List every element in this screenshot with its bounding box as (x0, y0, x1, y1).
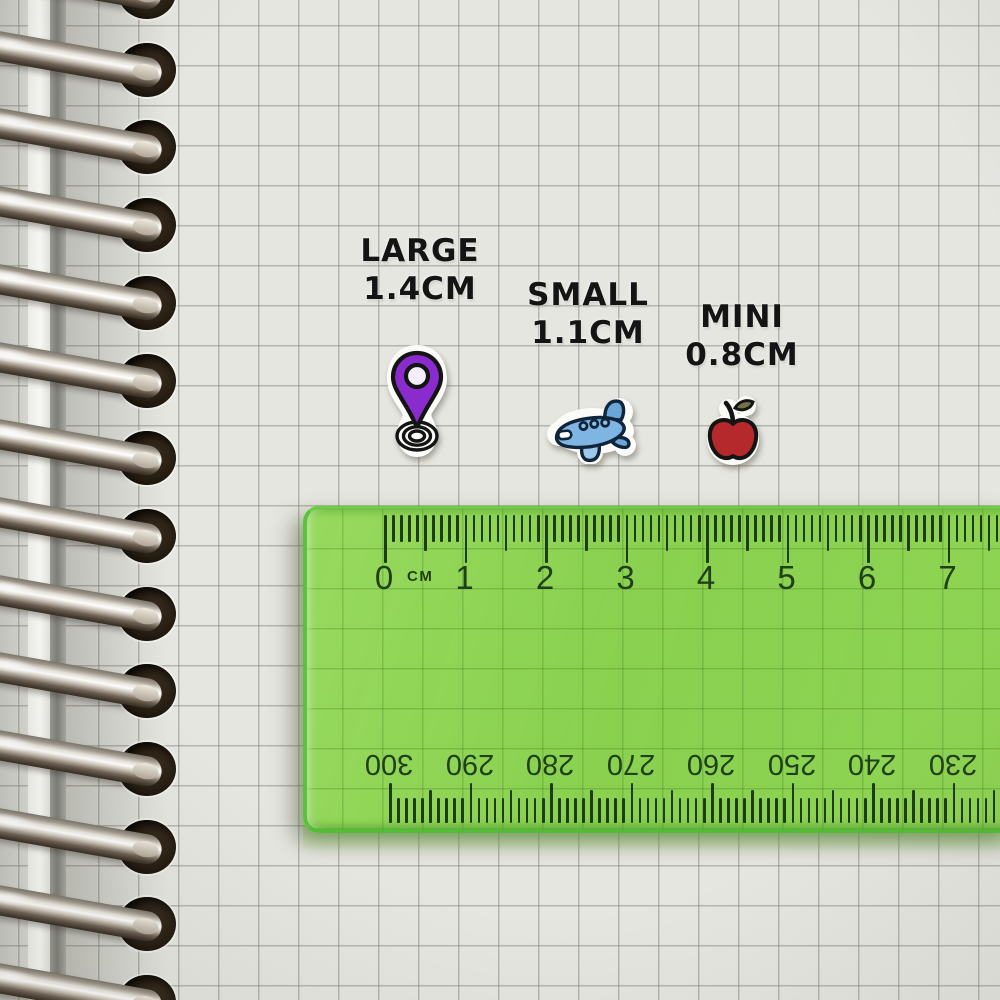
ruler-tick (489, 515, 492, 542)
ruler-tick (767, 798, 770, 823)
metal-coil-ring (0, 883, 164, 944)
ruler-tick (964, 515, 967, 542)
ruler-number: 290 (440, 747, 500, 780)
ruler-tick (843, 515, 846, 542)
ruler-tick (453, 798, 456, 823)
ruler-tick (639, 798, 642, 823)
ruler-tick (558, 798, 561, 823)
ruler-tick (510, 790, 513, 823)
ruler-number: 6 (837, 559, 897, 597)
ruler-tick (416, 515, 419, 542)
ruler-tick (961, 798, 964, 823)
ruler-tick (754, 515, 757, 542)
ruler-tick (389, 783, 392, 823)
spiral-ring-unit (0, 651, 220, 731)
ruler-tick (448, 515, 451, 542)
ruler-number: 250 (762, 747, 822, 780)
spiral-ring-unit (0, 884, 220, 964)
ruler-number: 230 (923, 747, 983, 780)
ruler-tick (534, 798, 537, 823)
ruler-tick (537, 515, 540, 542)
ruler-tick (928, 798, 931, 823)
ruler-tick (478, 798, 481, 823)
spiral-ring-unit (0, 962, 220, 1000)
ruler-tick (408, 515, 411, 542)
spiral-ring-unit (0, 418, 220, 498)
metal-coil-ring (0, 728, 164, 789)
ruler-tick (671, 790, 674, 823)
ruler-tick (445, 798, 448, 823)
metal-coil-ring (0, 572, 164, 633)
ruler-tick (550, 783, 553, 823)
ruler-tick (486, 798, 489, 823)
spiral-ring-unit (0, 185, 220, 265)
ruler-tick (985, 798, 988, 823)
ruler-tick (617, 515, 620, 542)
ruler-tick (727, 798, 730, 823)
ruler-tick (920, 798, 923, 823)
ruler-tick (695, 798, 698, 823)
ruler-tick (977, 798, 980, 823)
ruler-tick (593, 515, 596, 542)
metal-coil-ring (0, 262, 164, 323)
ruler-tick (896, 798, 899, 823)
ruler-tick (775, 798, 778, 823)
metal-coil-ring (0, 806, 164, 867)
spiral-ring-unit (0, 729, 220, 809)
ruler-tick (432, 515, 435, 542)
ruler-tick (518, 798, 521, 823)
ruler-tick (778, 515, 781, 542)
ruler-tick (808, 798, 811, 823)
ruler-tick (494, 798, 497, 823)
notebook-photo: LARGE 1.4CM SMALL 1.1CM MINI 0.8CM (0, 0, 1000, 1000)
spiral-ring-unit (0, 0, 220, 32)
metal-coil-ring (0, 417, 164, 478)
ruler-tick (904, 798, 907, 823)
ruler-tick (545, 515, 548, 563)
ruler-tick (590, 790, 593, 823)
ruler-tick (711, 783, 714, 823)
ruler-tick (730, 515, 733, 542)
ruler-tick (867, 515, 870, 563)
ruler-tick (634, 515, 637, 542)
large-sticker-label: LARGE 1.4CM (340, 232, 500, 308)
ruler-tick (931, 515, 934, 542)
ruler-tick (770, 515, 773, 542)
ruler-tick (521, 515, 524, 542)
ruler-tick (679, 798, 682, 823)
ruler-tick (598, 798, 601, 823)
ruler-tick (759, 798, 762, 823)
ruler-tick (827, 515, 830, 551)
ruler-tick (666, 515, 669, 551)
ruler-tick (722, 515, 725, 542)
ruler-number: 280 (520, 747, 580, 780)
ruler-tick (513, 515, 516, 542)
ruler-tick (800, 798, 803, 823)
ruler-tick (663, 798, 666, 823)
ruler-tick (988, 515, 991, 551)
ruler-tick (413, 798, 416, 823)
ruler-tick (561, 515, 564, 542)
spiral-ring-unit (0, 107, 220, 187)
ruler-tick (787, 515, 790, 563)
ruler-tick (969, 798, 972, 823)
location-pin-sticker (384, 343, 450, 461)
ruler-tick (795, 515, 798, 542)
mini-label-size: 0.8CM (662, 336, 822, 374)
ruler-tick (912, 790, 915, 823)
ruler-tick (384, 515, 387, 563)
pin-hole (406, 365, 428, 387)
ruler-tick (392, 515, 395, 542)
ruler-tick (915, 515, 918, 542)
ruler-tick (529, 515, 532, 542)
ruler-tick (948, 515, 951, 563)
ruler-tick (470, 783, 473, 823)
ruler-tick (703, 798, 706, 823)
ruler-tick (956, 515, 959, 542)
ruler-tick (622, 798, 625, 823)
metal-coil-ring (0, 106, 164, 167)
ruler-tick (626, 515, 629, 563)
ruler-tick (880, 798, 883, 823)
ruler-tick (674, 515, 677, 542)
ruler-tick (939, 515, 942, 542)
ruler-tick (690, 515, 693, 542)
spiral-binding (0, 0, 230, 1000)
metal-coil-ring (0, 29, 164, 90)
ruler-number: 3 (596, 559, 656, 597)
ruler-tick (585, 515, 588, 551)
ruler-tick (655, 798, 658, 823)
ruler-tick (647, 798, 650, 823)
ruler-tick (751, 790, 754, 823)
large-label-name: LARGE (340, 232, 500, 270)
ruler-tick (682, 515, 685, 542)
ruler-tick (424, 515, 427, 551)
ruler-tick (864, 798, 867, 823)
spiral-ring-unit (0, 263, 220, 343)
spiral-ring-unit (0, 341, 220, 421)
spiral-ring-unit (0, 574, 220, 654)
small-label-size: 1.1CM (508, 314, 668, 352)
ruler-tick (993, 790, 996, 823)
ruler-tick (907, 515, 910, 551)
ruler-tick (465, 515, 468, 563)
ruler-tick (980, 515, 983, 542)
ruler-number: 240 (842, 747, 902, 780)
ruler-tick (783, 798, 786, 823)
metal-coil-ring (0, 650, 164, 711)
ruler-tick (574, 798, 577, 823)
ruler-tick (461, 798, 464, 823)
ruler-tick (658, 515, 661, 542)
ruler-tick (743, 798, 746, 823)
ruler-tick (746, 515, 749, 551)
ruler-tick (569, 515, 572, 542)
ruler-tick (803, 515, 806, 542)
mini-sticker-label: MINI 0.8CM (662, 298, 822, 374)
ruler-tick (996, 515, 999, 542)
ruler-tick (473, 515, 476, 542)
ruler-number: 5 (757, 559, 817, 597)
metal-coil-ring (0, 495, 164, 556)
ruler-tick (888, 798, 891, 823)
ruler-tick (824, 798, 827, 823)
ruler-tick (456, 515, 459, 542)
ruler-tick (899, 515, 902, 542)
ruler-tick (738, 515, 741, 542)
ruler-number: 0 (354, 559, 414, 597)
ruler-tick (875, 515, 878, 542)
ruler-tick (891, 515, 894, 542)
ruler-tick (582, 798, 585, 823)
ruler-tick (714, 515, 717, 542)
ruler-tick (811, 515, 814, 542)
ruler-tick (601, 515, 604, 542)
apple-sticker (702, 394, 764, 466)
ruler-tick (642, 515, 645, 542)
ruler-tick (566, 798, 569, 823)
ruler-tick (405, 798, 408, 823)
ruler-tick (792, 783, 795, 823)
ruler-tick (859, 515, 862, 542)
ruler-tick (840, 798, 843, 823)
ruler-tick (762, 515, 765, 542)
ruler-tick (819, 515, 822, 542)
ruler-number: 300 (359, 747, 419, 780)
ruler-tick (706, 515, 709, 563)
metal-coil-ring (0, 184, 164, 245)
spiral-ring-unit (0, 496, 220, 576)
ruler-tick (883, 515, 886, 542)
metal-coil-ring (0, 339, 164, 400)
ruler-number: 270 (601, 747, 661, 780)
ruler-tick (505, 515, 508, 551)
ruler-tick (397, 798, 400, 823)
ruler-tick (553, 515, 556, 542)
ruler-tick (972, 515, 975, 542)
ruler-tick (481, 515, 484, 542)
ruler-number: 1 (435, 559, 495, 597)
ruler-tick (936, 798, 939, 823)
ruler-tick (542, 798, 545, 823)
ruler-number: 7 (918, 559, 978, 597)
mini-label-name: MINI (662, 298, 822, 336)
ruler-tick (429, 790, 432, 823)
ruler-tick (835, 515, 838, 542)
ruler-tick (497, 515, 500, 542)
large-label-size: 1.4CM (340, 270, 500, 308)
ruler-number: 4 (676, 559, 736, 597)
ruler-tick (650, 515, 653, 542)
small-label-name: SMALL (508, 276, 668, 314)
ruler-tick (437, 798, 440, 823)
ruler-tick (832, 790, 835, 823)
ruler-tick (698, 515, 701, 542)
ruler-tick (502, 798, 505, 823)
ruler-tick (923, 515, 926, 542)
ruler-tick (856, 798, 859, 823)
small-sticker-label: SMALL 1.1CM (508, 276, 668, 352)
ruler-tick (614, 798, 617, 823)
ruler-number: 260 (681, 747, 741, 780)
ruler-tick (421, 798, 424, 823)
ruler-tick (687, 798, 690, 823)
ruler-tick (400, 515, 403, 542)
ruler-tick (440, 515, 443, 542)
ruler-tick (735, 798, 738, 823)
ruler-tick (526, 798, 529, 823)
ruler-tick (872, 783, 875, 823)
ruler-tick (577, 515, 580, 542)
green-ruler: CM 0 1 2 3 4 5 6 7 300 290 280 270 260 2… (303, 506, 1000, 833)
ruler-tick (606, 798, 609, 823)
ruler-tick (848, 798, 851, 823)
ruler-tick (944, 798, 947, 823)
ruler-tick (631, 783, 634, 823)
ruler-tick (609, 515, 612, 542)
ruler-tick (719, 798, 722, 823)
ruler-tick (851, 515, 854, 542)
airplane-sticker (546, 398, 642, 464)
ruler-number: 2 (515, 559, 575, 597)
ruler-tick (816, 798, 819, 823)
spiral-ring-unit (0, 807, 220, 887)
spiral-ring-unit (0, 30, 220, 110)
ruler-tick (953, 783, 956, 823)
